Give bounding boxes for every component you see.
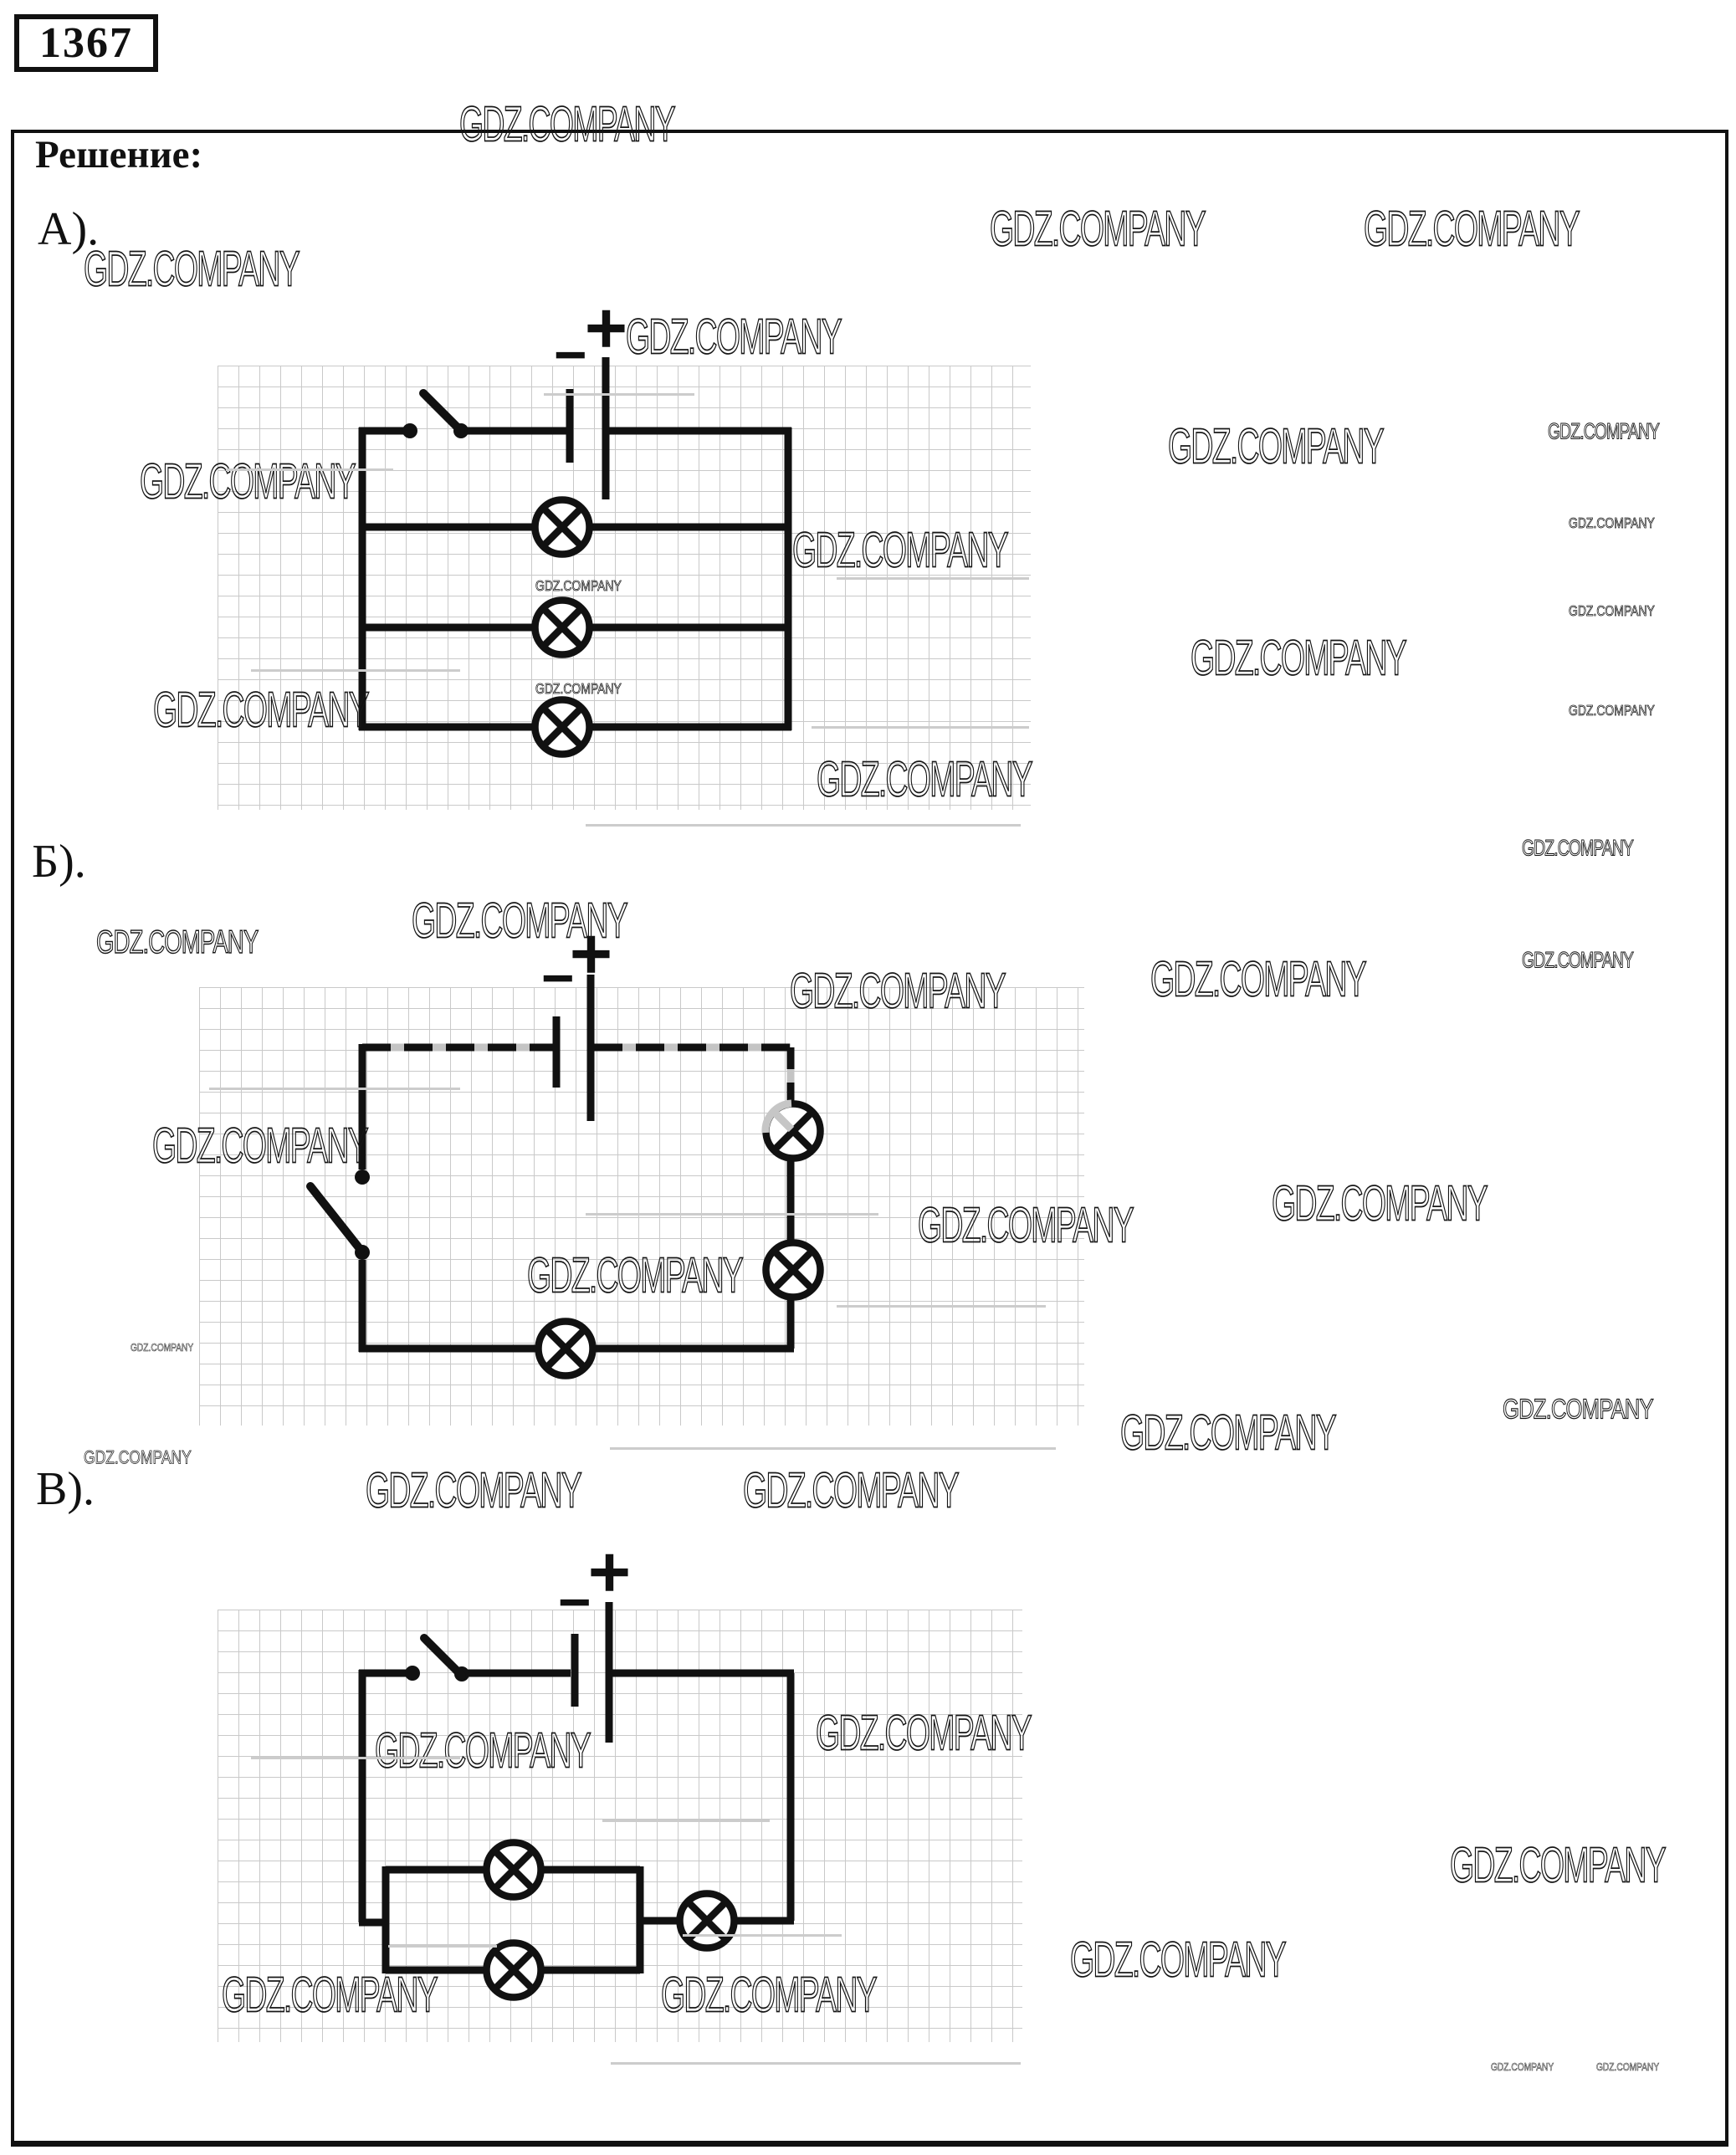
lamp-icon	[680, 1894, 735, 1948]
watermark-text: GDZ.COMPANY	[527, 1252, 742, 1301]
watermark-text: GDZ.COMPANY	[1569, 704, 1655, 718]
residue-line	[602, 1820, 770, 1822]
battery-minus-label: −	[540, 956, 576, 1000]
lamp-icon	[487, 1943, 541, 1998]
residue-line	[251, 1757, 460, 1759]
lamp-icon	[539, 1322, 593, 1376]
residue-line	[611, 2062, 1021, 2065]
residue-line	[683, 1934, 842, 1937]
switch-icon	[310, 1170, 370, 1260]
watermark-text: GDZ.COMPANY	[535, 579, 622, 593]
battery-plus-label: +	[582, 299, 630, 356]
circuit-diagrams	[0, 0, 1736, 2155]
watermark-text: GDZ.COMPANY	[153, 686, 368, 735]
residue-line	[586, 1213, 878, 1216]
watermark-text: GDZ.COMPANY	[918, 1201, 1133, 1251]
switch-icon	[405, 1638, 469, 1682]
watermark-text: GDZ.COMPANY	[990, 205, 1205, 254]
residue-line	[226, 468, 393, 471]
lamp-icon	[535, 601, 590, 655]
battery-minus-label: −	[552, 333, 589, 376]
watermark-text: GDZ.COMPANY	[84, 1449, 192, 1467]
watermark-text: GDZ.COMPANY	[790, 967, 1005, 1016]
watermark-text: GDZ.COMPANY	[1503, 1395, 1653, 1424]
watermark-text: GDZ.COMPANY	[375, 1727, 590, 1776]
switch-icon	[402, 393, 469, 438]
watermark-text: GDZ.COMPANY	[140, 458, 355, 507]
watermark-text: GDZ.COMPANY	[792, 526, 1007, 576]
watermark-text: GDZ.COMPANY	[366, 1467, 581, 1516]
circuit-b	[310, 975, 821, 1376]
watermark-text: GDZ.COMPANY	[535, 682, 622, 696]
residue-line	[251, 669, 460, 672]
watermark-text: GDZ.COMPANY	[1522, 837, 1633, 859]
watermark-text: GDZ.COMPANY	[131, 1342, 193, 1353]
watermark-text: GDZ.COMPANY	[817, 755, 1032, 805]
lamp-icon	[766, 1243, 821, 1298]
watermark-text: GDZ.COMPANY	[1150, 955, 1365, 1005]
watermark-text: GDZ.COMPANY	[1450, 1841, 1665, 1891]
lamp-icon	[487, 1843, 541, 1897]
watermark-text: GDZ.COMPANY	[459, 100, 674, 150]
watermark-text: GDZ.COMPANY	[1120, 1409, 1335, 1458]
residue-line	[837, 1305, 1046, 1308]
watermark-text: GDZ.COMPANY	[743, 1467, 958, 1516]
watermark-text: GDZ.COMPANY	[816, 1709, 1031, 1758]
watermark-text: GDZ.COMPANY	[1191, 634, 1406, 683]
residue-line	[544, 393, 694, 396]
residue-line	[586, 824, 1021, 827]
watermark-text: GDZ.COMPANY	[84, 245, 299, 294]
lamp-icon	[535, 500, 590, 555]
watermark-text: GDZ.COMPANY	[626, 313, 841, 362]
watermark-text: GDZ.COMPANY	[1522, 950, 1633, 971]
watermark-text: GDZ.COMPANY	[1548, 421, 1659, 443]
watermark-text: GDZ.COMPANY	[1272, 1180, 1487, 1229]
watermark-text: GDZ.COMPANY	[1070, 1936, 1285, 1985]
lamp-icon	[535, 700, 590, 755]
residue-line	[610, 1447, 1056, 1450]
battery-minus-label: −	[556, 1580, 593, 1624]
residue-line	[812, 726, 1029, 729]
watermark-text: GDZ.COMPANY	[1364, 205, 1579, 254]
watermark-text: GDZ.COMPANY	[1168, 422, 1383, 472]
watermark-text: GDZ.COMPANY	[1596, 2061, 1659, 2072]
watermark-text: GDZ.COMPANY	[1569, 516, 1655, 530]
residue-line	[388, 1945, 497, 1948]
watermark-text: GDZ.COMPANY	[1491, 2061, 1554, 2072]
residue-line	[837, 577, 1029, 580]
watermark-text: GDZ.COMPANY	[222, 1971, 437, 2020]
page: 1367 Решение: А). Б). В).	[0, 0, 1736, 2155]
watermark-text: GDZ.COMPANY	[412, 897, 627, 946]
watermark-text: GDZ.COMPANY	[152, 1122, 367, 1171]
circuit-v	[359, 1602, 794, 1998]
watermark-text: GDZ.COMPANY	[1569, 604, 1655, 618]
watermark-text: GDZ.COMPANY	[96, 927, 258, 960]
residue-line	[209, 1088, 460, 1090]
watermark-text: GDZ.COMPANY	[661, 1971, 876, 2020]
